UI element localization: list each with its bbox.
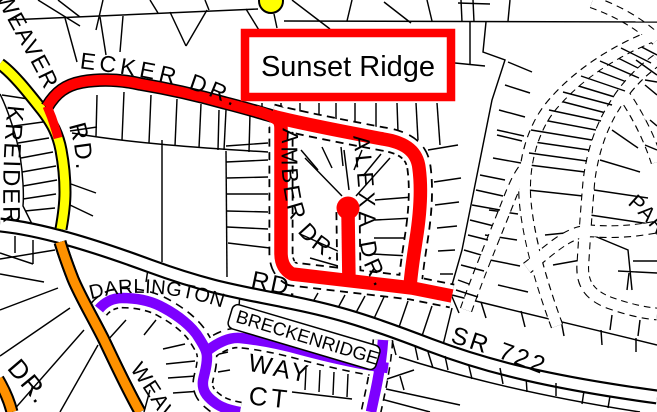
svg-text:CT: CT [247, 380, 292, 412]
svg-text:Sunset Ridge: Sunset Ridge [261, 51, 435, 83]
